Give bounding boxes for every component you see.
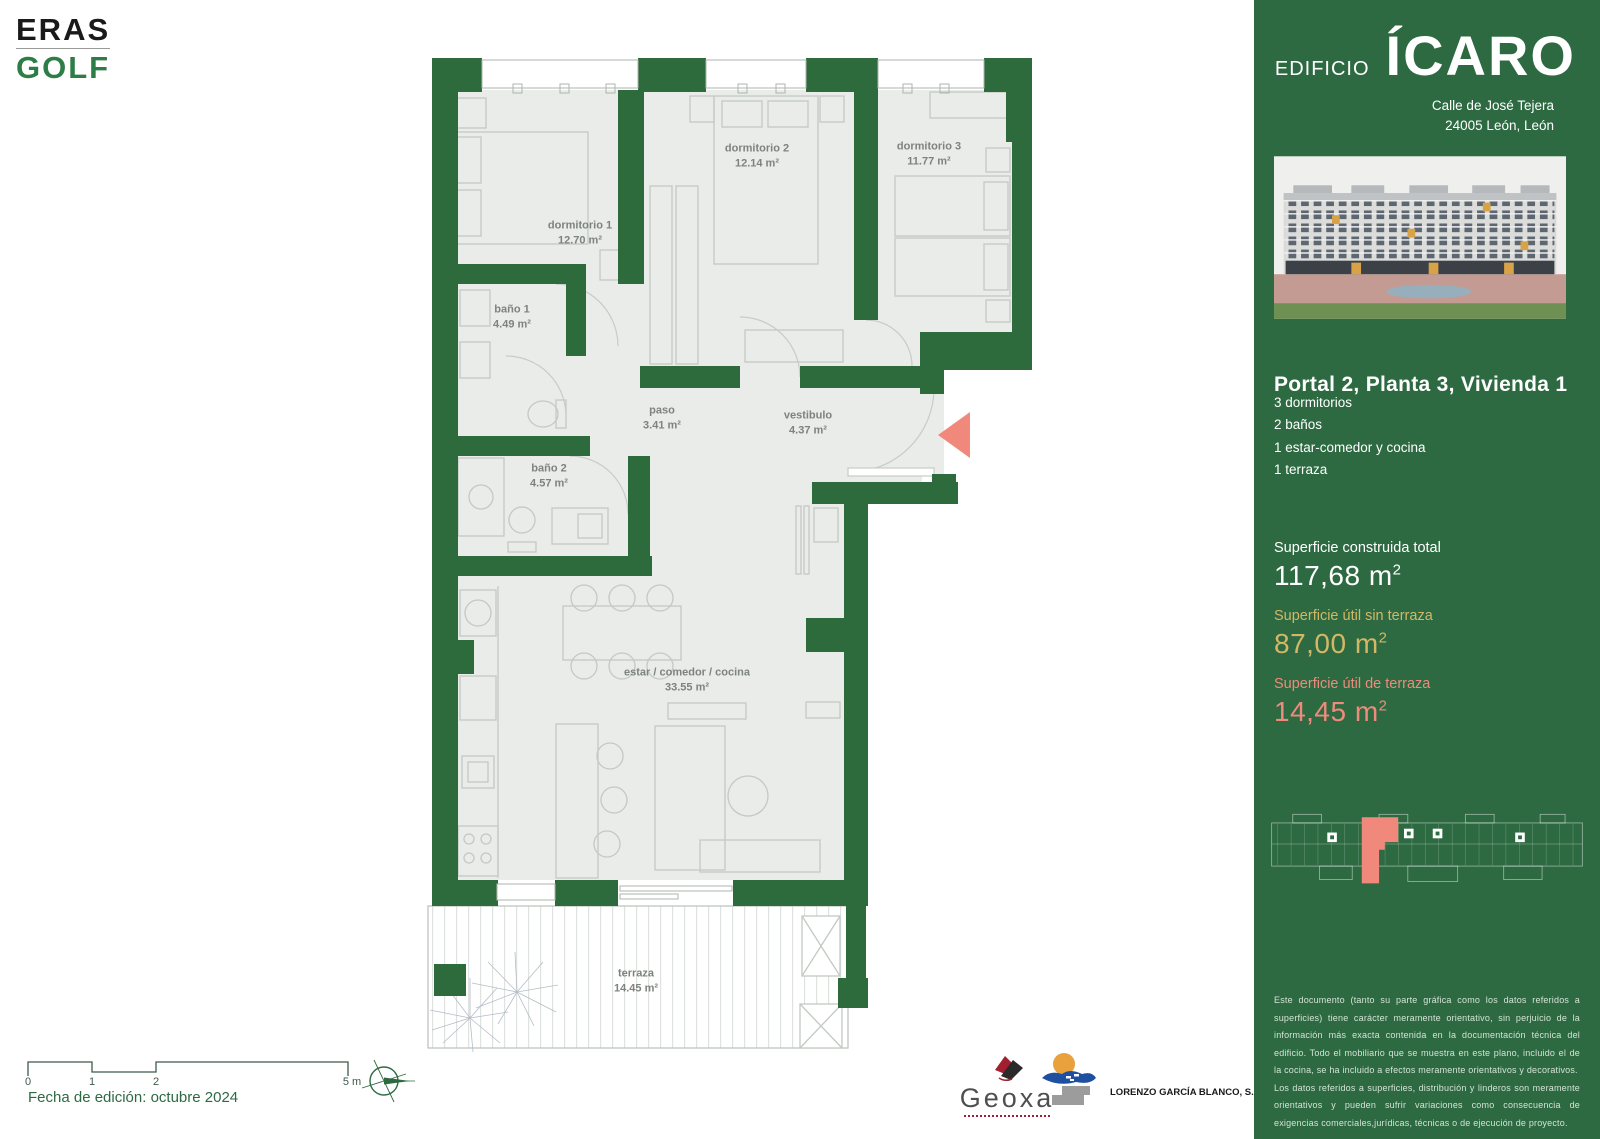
room-area: 4.37 m²: [784, 424, 832, 439]
room-name: vestibulo: [784, 409, 832, 424]
info-sidebar: EDIFICIO ÍCARO Calle de José Tejera 2400…: [1254, 0, 1600, 1139]
room-area: 11.77 m²: [897, 155, 961, 170]
surface-util-sin-terraza: Superficie útil sin terraza 87,00 m2: [1274, 608, 1441, 660]
surface-value: 14,45 m2: [1274, 696, 1441, 728]
feature-item: 3 dormitorios: [1274, 392, 1426, 414]
surface-label: Superficie útil de terraza: [1274, 676, 1441, 692]
geoxa-tagline: [964, 1114, 1050, 1117]
room-area: 4.57 m²: [530, 477, 568, 492]
room-area: 12.70 m²: [548, 234, 612, 249]
room-area: 3.41 m²: [643, 419, 681, 434]
surface-util-terraza: Superficie útil de terraza 14,45 m2: [1274, 676, 1441, 728]
disclaimer-paragraph-2: Los datos referidos a superficies, distr…: [1274, 1080, 1580, 1133]
feature-item: 1 terraza: [1274, 459, 1426, 481]
building-photo: [1274, 150, 1566, 325]
room-label-vestibulo: vestibulo 4.37 m²: [784, 409, 832, 440]
room-area: 33.55 m²: [624, 681, 750, 696]
room-area: 4.49 m²: [493, 318, 531, 333]
geoxa-logo-icon: [985, 1052, 1029, 1082]
room-label-terraza: terraza 14.45 m²: [614, 967, 658, 998]
room-area: 12.14 m²: [725, 157, 789, 172]
surface-label: Superficie construida total: [1274, 540, 1441, 556]
room-label-estar-comedor-cocina: estar / comedor / cocina 33.55 m²: [624, 666, 750, 697]
surface-value: 117,68 m2: [1274, 560, 1441, 592]
brand-golf-text: GOLF: [16, 52, 110, 83]
surfaces-block: Superficie construida total 117,68 m2 Su…: [1274, 540, 1441, 744]
building-title: EDIFICIO ÍCARO: [1254, 28, 1576, 84]
lgb-logo-text: LORENZO GARCÍA BLANCO, S.L.: [1110, 1087, 1262, 1106]
compass-icon: [358, 1058, 416, 1106]
room-label-dormitorio-2: dormitorio 2 12.14 m²: [725, 142, 789, 173]
disclaimer-paragraph-1: Este documento (tanto su parte gráfica c…: [1274, 992, 1580, 1080]
room-name: dormitorio 2: [725, 142, 789, 157]
address-line-2: 24005 León, León: [1432, 116, 1554, 136]
lorenzo-garcia-blanco-logo: LORENZO GARCÍA BLANCO, S.L.: [1040, 1048, 1262, 1106]
brand-eras-text: ERAS: [16, 14, 110, 49]
room-name: paso: [643, 404, 681, 419]
brand-logo: ERAS GOLF: [16, 14, 110, 83]
scale-tick-0: 0: [25, 1076, 31, 1088]
scale-bar: [20, 1052, 360, 1078]
scale-tick-2: 2: [153, 1076, 159, 1088]
lgb-logo-icon: [1040, 1048, 1102, 1106]
room-area: 14.45 m²: [614, 982, 658, 997]
room-label-bano-2: baño 2 4.57 m²: [530, 462, 568, 493]
building-label: EDIFICIO: [1275, 58, 1370, 81]
room-label-paso: paso 3.41 m²: [643, 404, 681, 435]
room-name: estar / comedor / cocina: [624, 666, 750, 681]
building-name: ÍCARO: [1386, 28, 1576, 84]
legal-disclaimer: Este documento (tanto su parte gráfica c…: [1274, 992, 1580, 1132]
room-name: dormitorio 1: [548, 219, 612, 234]
feature-item: 1 estar-comedor y cocina: [1274, 437, 1426, 459]
building-address: Calle de José Tejera 24005 León, León: [1432, 96, 1554, 137]
feature-item: 2 baños: [1274, 414, 1426, 436]
scale-tick-1: 1: [89, 1076, 95, 1088]
edition-date: Fecha de edición: octubre 2024: [28, 1089, 238, 1106]
room-name: baño 2: [530, 462, 568, 477]
surface-label: Superficie útil sin terraza: [1274, 608, 1441, 624]
room-label-dormitorio-1: dormitorio 1 12.70 m²: [548, 219, 612, 250]
floor-locator-miniplan: [1264, 790, 1590, 900]
address-line-1: Calle de José Tejera: [1432, 96, 1554, 116]
room-name: baño 1: [493, 303, 531, 318]
room-name: terraza: [614, 967, 658, 982]
brochure-page: ERAS GOLF: [0, 0, 1600, 1139]
surface-total: Superficie construida total 117,68 m2: [1274, 540, 1441, 592]
floor-plan-drawing: [420, 40, 1040, 1060]
surface-value: 87,00 m2: [1274, 628, 1441, 660]
room-name: dormitorio 3: [897, 140, 961, 155]
room-label-bano-1: baño 1 4.49 m²: [493, 303, 531, 334]
unit-features-list: 3 dormitorios 2 baños 1 estar-comedor y …: [1274, 392, 1426, 481]
room-label-dormitorio-3: dormitorio 3 11.77 m²: [897, 140, 961, 171]
